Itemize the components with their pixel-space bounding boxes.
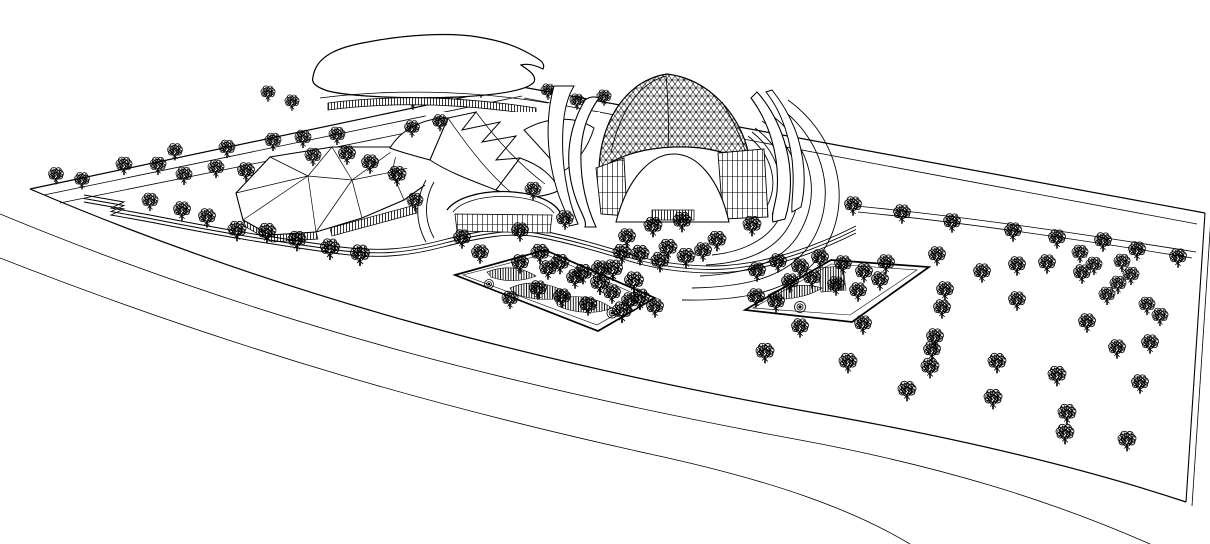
tree-icon [116,157,132,175]
tree-icon [321,239,340,260]
tree-icon [1108,340,1125,359]
tree-icon [1131,375,1148,394]
tree-icon [176,167,192,185]
tree-icon [748,263,765,282]
tree-icon [471,245,488,264]
tree-icon [1169,249,1186,268]
tree-icon [694,243,711,262]
tree-icon [1008,257,1025,276]
tree-icon [142,193,158,211]
tree-icon [1094,233,1111,252]
tree-icon [756,343,774,363]
tree-icon [936,282,953,301]
blob-roof-building [313,35,548,115]
tree-icon [502,291,518,309]
tree-icon [556,211,573,230]
tree-icon [928,247,945,266]
tree-icon [921,358,939,378]
tree-icon [791,319,808,338]
tree-icon [1118,431,1136,451]
tree-icon [646,299,663,318]
tree-icon [453,230,470,249]
tree-icon [1128,242,1145,261]
tree-icon [1073,265,1090,284]
tree-icon [839,353,857,373]
tree-icon [988,353,1006,373]
tree-icon [351,245,370,266]
tree-icon [1048,366,1066,386]
tree-icon [261,86,275,102]
tree-icon [219,140,235,158]
tree-icon [984,389,1002,409]
tree-icon [1072,245,1088,263]
tree-icon [511,223,528,242]
tree-icon [167,143,182,160]
entry-glazing-grid [455,214,552,233]
tree-icon [644,217,662,237]
tree-icon [673,212,691,232]
tree-icon [1152,308,1168,326]
tree-icon [743,216,761,236]
tree-icon [74,172,89,189]
tree-icon [973,264,990,283]
tree-icon [295,130,311,148]
tree-icon [1048,230,1065,249]
tree-icon [854,316,871,335]
tree-icon [228,221,246,241]
tree-icon [1038,255,1055,274]
tree-icon [933,300,950,319]
blob-roof-outline [313,35,544,98]
tree-icon [898,381,916,401]
tree-icon [1078,314,1095,333]
tree-icon [923,342,940,361]
tree-icon [1004,223,1021,242]
tree-icon [943,214,960,233]
tree-icon [1008,292,1025,311]
tree-icon [893,205,910,224]
site-rendering-canvas [0,0,1210,544]
tree-icon [285,95,299,111]
tree-icon [769,254,786,273]
site-plan-drawing [0,0,1210,544]
tree-icon [1058,404,1076,424]
tree-icon [208,160,224,178]
tree-icon [173,202,190,221]
tree-icon [1099,287,1115,305]
tree-icon [1056,424,1074,444]
tree-icon [1141,335,1158,354]
tree-icon [329,127,345,145]
tree-icon [844,197,861,216]
